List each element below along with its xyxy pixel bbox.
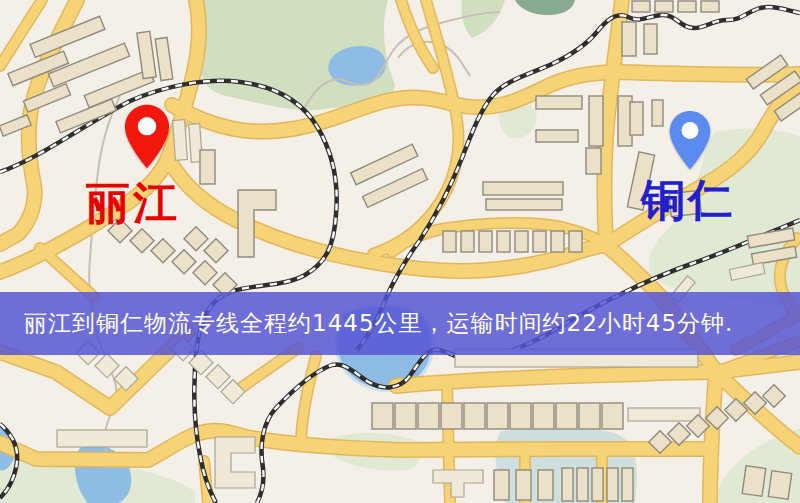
- origin-map-pin[interactable]: [124, 103, 170, 170]
- map-view: 丽江 铜仁 丽江到铜仁物流专线全程约1445公里，运输时间约22小时45分钟.: [0, 0, 800, 503]
- origin-city-label: 丽江: [86, 181, 180, 225]
- destination-map-pin[interactable]: [668, 110, 712, 170]
- destination-city-label: 铜仁: [641, 178, 735, 222]
- pin-hole: [682, 122, 699, 139]
- logistics-info-text: 丽江到铜仁物流专线全程约1445公里，运输时间约22小时45分钟.: [24, 308, 733, 339]
- logistics-info-banner: 丽江到铜仁物流专线全程约1445公里，运输时间约22小时45分钟.: [0, 292, 800, 355]
- map-canvas[interactable]: [0, 0, 800, 503]
- pin-hole: [138, 117, 156, 135]
